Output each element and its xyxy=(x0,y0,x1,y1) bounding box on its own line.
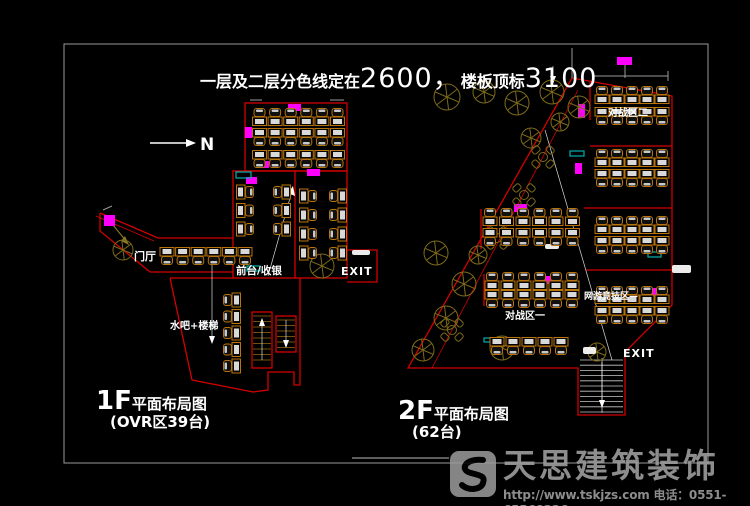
pc-seat xyxy=(274,222,291,236)
pc-seat xyxy=(610,217,624,234)
pc-seat xyxy=(331,151,345,168)
pc-seat xyxy=(516,209,530,226)
watermark-logo-icon xyxy=(450,451,496,497)
pc-seat xyxy=(566,209,580,226)
pc-seat xyxy=(500,229,514,246)
pc-seat xyxy=(224,310,241,324)
door-marker xyxy=(245,127,252,138)
2f-zone1-label: 对战区一 xyxy=(505,309,545,322)
pc-seat xyxy=(655,108,669,125)
pc-seat xyxy=(222,248,236,265)
pc-seat xyxy=(655,150,669,167)
1f-counter-label: 前台/收银 xyxy=(236,264,282,277)
north-arrowhead xyxy=(186,139,196,147)
pc-seat xyxy=(625,217,639,234)
2f-count: (62台) xyxy=(412,425,509,441)
pc-seat xyxy=(640,237,654,254)
pc-seat xyxy=(224,293,241,307)
door-marker xyxy=(575,163,582,174)
pc-seat xyxy=(300,227,317,241)
pc-seat xyxy=(300,246,317,260)
pc-seat xyxy=(640,170,654,187)
1f-exit-label: EXIT xyxy=(341,265,373,278)
title-prefix: 一层及二层分色线定在 xyxy=(200,68,360,92)
pc-seat xyxy=(237,204,254,218)
pc-seat xyxy=(595,307,609,324)
pc-seat xyxy=(640,287,654,304)
pc-seat xyxy=(610,170,624,187)
pc-seat xyxy=(330,227,347,241)
pc-seat xyxy=(299,109,313,126)
pc-seat xyxy=(485,273,499,290)
pc-seat xyxy=(268,129,282,146)
pc-seat xyxy=(253,109,267,126)
pc-seat xyxy=(533,229,547,246)
pc-seat xyxy=(640,87,654,104)
1f-waterbar-label: 水吧+楼梯 xyxy=(169,319,218,332)
pc-seat xyxy=(500,209,514,226)
pc-seat xyxy=(191,248,205,265)
pc-seat xyxy=(533,273,547,290)
1f-entrance-label: 门厅 xyxy=(134,249,156,263)
pc-seat xyxy=(517,291,531,308)
title-middle: 楼板顶标 xyxy=(461,68,525,92)
pc-seat xyxy=(274,204,291,218)
2f-floor: 2F xyxy=(398,396,434,426)
pc-seat xyxy=(566,229,580,246)
pc-seat xyxy=(224,326,241,340)
pc-seat xyxy=(330,246,347,260)
pc-seat xyxy=(253,151,267,168)
pc-seat xyxy=(655,307,669,324)
door-marker xyxy=(104,215,115,226)
pc-seat xyxy=(640,217,654,234)
door-swing-icon xyxy=(113,240,133,260)
pc-seat xyxy=(224,359,241,373)
pc-seat xyxy=(237,185,254,199)
north-label: N xyxy=(200,135,214,155)
pc-seat xyxy=(253,129,267,146)
pc-seat xyxy=(485,291,499,308)
pc-seat xyxy=(610,150,624,167)
pc-seat xyxy=(501,291,515,308)
pc-seat xyxy=(565,291,579,308)
pc-seat xyxy=(640,150,654,167)
watermark-contact: http://www.tskjzs.com 电话：0551-65568226 xyxy=(503,486,748,506)
pc-seat xyxy=(330,189,347,203)
pc-seat xyxy=(284,151,298,168)
pc-seat xyxy=(549,291,563,308)
pc-seat xyxy=(655,217,669,234)
pc-seat xyxy=(595,150,609,167)
pc-seat xyxy=(533,291,547,308)
plan-2f: 对战区二 对战区一 网游竞技区— EXIT xyxy=(408,48,691,415)
north-arrow: N xyxy=(150,135,214,155)
pc-seat xyxy=(268,109,282,126)
pc-seat xyxy=(483,229,497,246)
watermark-brand: 天思建筑装饰 xyxy=(503,448,748,484)
pc-seat xyxy=(516,229,530,246)
pc-seat xyxy=(315,151,329,168)
tree-icon xyxy=(551,113,569,131)
pc-seat xyxy=(549,209,563,226)
pc-seat xyxy=(300,208,317,222)
pc-seat xyxy=(299,151,313,168)
2f-staircase xyxy=(580,358,623,413)
pc-seat xyxy=(655,170,669,187)
pc-seat xyxy=(284,109,298,126)
2f-zone2-label: 对战区二 xyxy=(608,106,648,119)
pc-seat xyxy=(315,129,329,146)
1f-floor: 1F xyxy=(96,386,132,416)
title-value2: 3100 xyxy=(525,63,598,94)
pc-seat xyxy=(237,222,254,236)
pc-seat xyxy=(331,109,345,126)
pc-seat xyxy=(284,129,298,146)
pc-seat xyxy=(625,237,639,254)
pc-seat xyxy=(331,129,345,146)
pc-seat xyxy=(640,307,654,324)
pc-seat xyxy=(274,185,291,199)
title-value1: 2600， xyxy=(360,56,461,95)
pc-seat xyxy=(268,151,282,168)
pc-seat xyxy=(554,338,568,355)
pc-seat xyxy=(490,338,504,355)
drawing-title: 一层及二层分色线定在2600，楼板顶标3100 xyxy=(200,56,597,95)
1f-staircase xyxy=(252,312,296,368)
table-icon xyxy=(512,183,536,207)
pc-seat xyxy=(176,248,190,265)
pc-seat xyxy=(483,209,497,226)
tree-icon xyxy=(424,241,448,265)
pc-seat xyxy=(506,338,520,355)
plan-1f: 门厅 前台/收银 水吧+楼梯 EXIT xyxy=(96,100,377,392)
pc-seat xyxy=(655,237,669,254)
pc-seat xyxy=(501,273,515,290)
door-marker xyxy=(307,169,320,176)
pc-seat xyxy=(238,248,252,265)
pc-seat xyxy=(610,307,624,324)
1f-count: (OVR区39台) xyxy=(110,415,210,431)
pc-seat xyxy=(625,150,639,167)
2f-name: 平面布局图 xyxy=(434,405,509,423)
pc-seat xyxy=(224,343,241,357)
pc-seat xyxy=(533,209,547,226)
pc-seat xyxy=(625,307,639,324)
pc-seat xyxy=(610,237,624,254)
pc-seat xyxy=(610,87,624,104)
pc-seat xyxy=(160,248,174,265)
2f-caption: 2F平面布局图 (62台) xyxy=(398,398,509,441)
2f-exit-label: EXIT xyxy=(623,347,655,360)
pc-seat xyxy=(300,189,317,203)
watermark: 天思建筑装饰 http://www.tskjzs.com 电话：0551-655… xyxy=(450,448,748,506)
pc-seat xyxy=(207,248,221,265)
pc-seat xyxy=(549,273,563,290)
pc-seat xyxy=(315,109,329,126)
pc-seat xyxy=(625,87,639,104)
cad-drawing-stage: N xyxy=(0,0,750,506)
pc-seat xyxy=(595,108,609,125)
pc-seat xyxy=(595,170,609,187)
1f-entrance-door-symbol xyxy=(113,225,129,245)
pc-seat xyxy=(595,237,609,254)
pc-seat xyxy=(549,229,563,246)
pc-seat xyxy=(330,208,347,222)
pc-seat xyxy=(299,129,313,146)
pc-seat xyxy=(517,273,531,290)
pc-seat xyxy=(595,217,609,234)
1f-caption: 1F平面布局图 (OVR区39台) xyxy=(96,388,210,431)
pc-seat xyxy=(655,287,669,304)
pc-seat xyxy=(522,338,536,355)
2f-netzone-label: 网游竞技区— xyxy=(584,290,638,302)
counter-outline xyxy=(570,151,584,156)
pc-seat xyxy=(625,170,639,187)
pc-seat xyxy=(565,273,579,290)
pc-seat xyxy=(538,338,552,355)
pc-seat xyxy=(655,87,669,104)
door-marker xyxy=(617,57,632,65)
1f-name: 平面布局图 xyxy=(132,395,207,413)
